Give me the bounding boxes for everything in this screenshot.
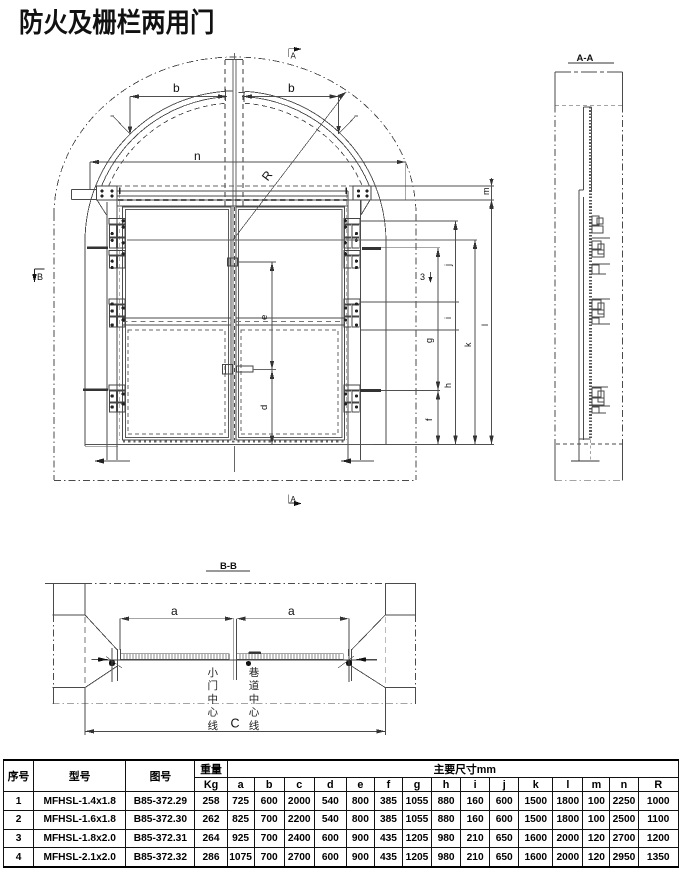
svg-text:线: 线: [249, 719, 260, 732]
svg-text:e: e: [259, 315, 270, 320]
svg-text:a: a: [288, 604, 295, 618]
svg-text:g: g: [424, 338, 434, 343]
svg-text:心: 心: [208, 707, 219, 719]
svg-text:j: j: [443, 264, 453, 267]
svg-text:l: l: [480, 324, 490, 326]
svg-text:B: B: [37, 272, 43, 282]
svg-text:中: 中: [208, 692, 219, 705]
svg-text:A-A: A-A: [577, 53, 594, 64]
svg-text:3: 3: [420, 272, 425, 282]
svg-text:小: 小: [208, 667, 219, 679]
svg-text:m: m: [481, 188, 491, 196]
svg-text:A: A: [291, 495, 297, 504]
svg-text:i: i: [443, 317, 453, 319]
svg-text:b: b: [288, 81, 295, 95]
svg-text:门: 门: [208, 679, 219, 692]
svg-text:A: A: [291, 52, 297, 61]
svg-text:B-B: B-B: [220, 561, 237, 572]
svg-text:h: h: [443, 383, 453, 388]
svg-text:心: 心: [249, 707, 260, 719]
svg-text:道: 道: [249, 679, 260, 692]
svg-text:n: n: [194, 149, 201, 163]
svg-text:k: k: [463, 342, 473, 347]
svg-text:R: R: [259, 168, 276, 184]
svg-text:a: a: [171, 604, 178, 618]
svg-text:d: d: [259, 405, 270, 410]
svg-text:中: 中: [249, 692, 260, 705]
svg-text:b: b: [173, 81, 180, 95]
svg-text:线: 线: [208, 719, 219, 732]
svg-text:巷: 巷: [249, 667, 260, 679]
svg-text:C: C: [231, 717, 240, 731]
svg-text:f: f: [424, 418, 434, 421]
